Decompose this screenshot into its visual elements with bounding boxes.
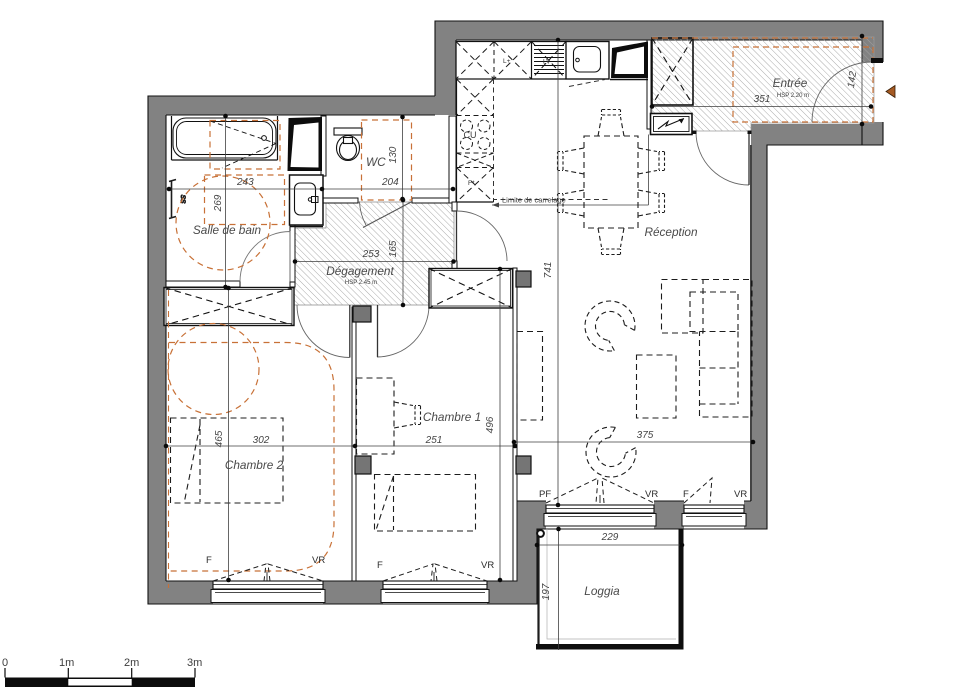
svg-text:741: 741 xyxy=(543,262,554,279)
svg-text:Réception: Réception xyxy=(644,225,698,239)
svg-text:VR: VR xyxy=(645,489,658,500)
svg-text:F*: F* xyxy=(468,180,475,187)
svg-text:CU: CU xyxy=(464,130,477,140)
svg-text:197: 197 xyxy=(541,583,552,600)
svg-text:2m: 2m xyxy=(124,657,139,669)
svg-text:351: 351 xyxy=(754,94,771,105)
svg-text:302: 302 xyxy=(253,435,270,446)
svg-text:F: F xyxy=(206,555,212,566)
svg-text:HSP 2.45 m: HSP 2.45 m xyxy=(345,280,377,286)
svg-text:Chambre 1: Chambre 1 xyxy=(423,410,481,424)
svg-text:204: 204 xyxy=(381,177,399,188)
svg-text:1m: 1m xyxy=(59,657,74,669)
svg-text:253: 253 xyxy=(362,249,380,260)
svg-text:Limite de carrelage: Limite de carrelage xyxy=(502,196,566,205)
svg-text:Loggia: Loggia xyxy=(584,584,620,598)
svg-text:LV: LV xyxy=(543,59,551,66)
svg-text:HSP 2.20 m: HSP 2.20 m xyxy=(777,93,809,99)
svg-text:VR: VR xyxy=(312,555,325,566)
svg-text:375: 375 xyxy=(637,430,654,441)
svg-text:130: 130 xyxy=(388,146,399,163)
svg-text:496: 496 xyxy=(485,416,496,433)
svg-text:165: 165 xyxy=(388,240,399,257)
svg-text:WC: WC xyxy=(366,155,386,169)
svg-text:Salle de bain: Salle de bain xyxy=(193,223,262,237)
svg-text:465: 465 xyxy=(214,430,225,447)
svg-text:F: F xyxy=(683,489,689,500)
svg-text:VR: VR xyxy=(481,560,494,571)
svg-text:Entrée: Entrée xyxy=(773,76,808,90)
svg-text:Dégagement: Dégagement xyxy=(326,264,394,278)
svg-text:3m: 3m xyxy=(187,657,202,669)
svg-text:269: 269 xyxy=(213,194,224,212)
svg-text:Chambre 2: Chambre 2 xyxy=(225,458,284,472)
svg-text:PF: PF xyxy=(539,489,551,500)
svg-text:243: 243 xyxy=(236,177,254,188)
svg-text:251: 251 xyxy=(425,435,443,446)
svg-text:F: F xyxy=(377,560,383,571)
svg-text:L+: L+ xyxy=(503,58,511,65)
svg-text:VR: VR xyxy=(734,489,747,500)
svg-text:0: 0 xyxy=(2,657,8,669)
svg-text:229: 229 xyxy=(601,532,619,543)
